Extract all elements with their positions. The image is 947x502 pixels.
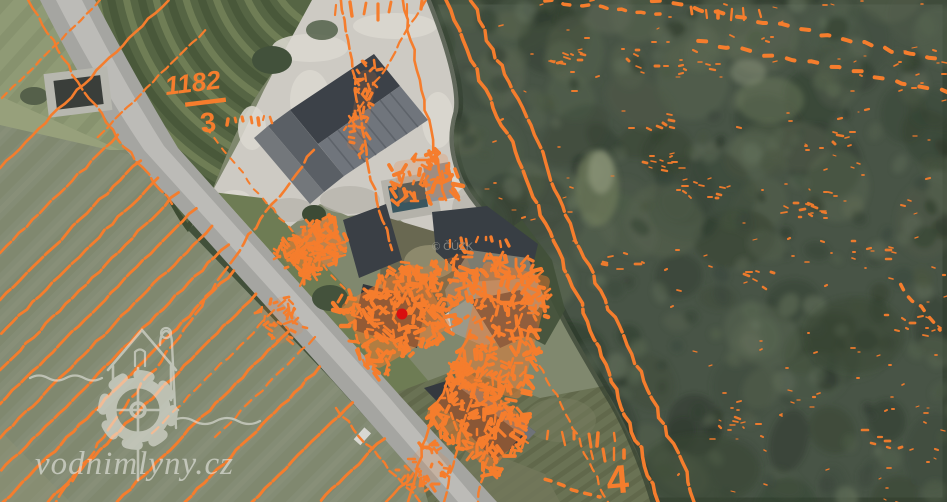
svg-text:© ČÚZK: © ČÚZK (432, 240, 474, 253)
svg-text:4: 4 (605, 457, 632, 502)
svg-text:vodnimlyny.cz: vodnimlyny.cz (35, 446, 234, 482)
